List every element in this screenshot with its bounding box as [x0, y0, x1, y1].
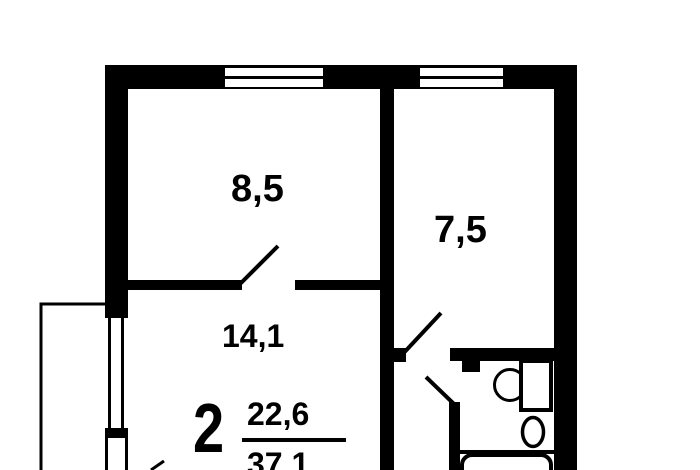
room-area-label-top-left: 8,5 — [231, 170, 284, 208]
balcony-icon — [41, 304, 105, 470]
room-area-label-top-right: 7,5 — [434, 211, 487, 249]
door-swing-icon-bathroom — [426, 377, 454, 404]
plan-graphics — [0, 0, 700, 470]
door-swing-icon-room-top-left — [240, 246, 278, 284]
room-area-label-bottom: 14,1 — [222, 320, 284, 352]
area-fraction-bar — [242, 438, 346, 442]
room-count-label: 2 — [193, 393, 224, 463]
living-area-label: 22,6 — [247, 398, 309, 430]
floor-plan: 8,5 7,5 14,1 2 22,6 37,1 — [0, 0, 700, 470]
toilet-icon — [523, 418, 544, 447]
total-area-label: 37,1 — [247, 448, 309, 470]
sink-cabinet-icon — [521, 361, 551, 410]
door-swing-icon-room-top-right — [399, 313, 441, 358]
bathtub-icon — [462, 455, 551, 470]
door-swing-icon-balcony — [151, 461, 164, 470]
